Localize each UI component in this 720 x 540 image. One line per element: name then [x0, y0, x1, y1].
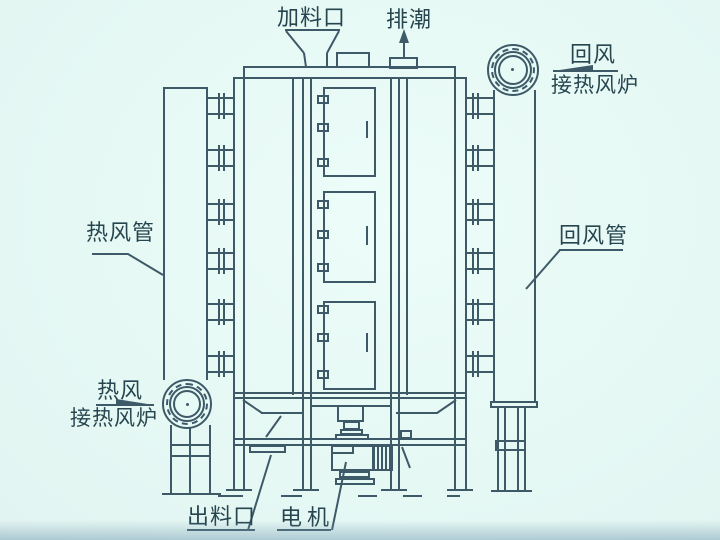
return-air-pipe-leader [526, 250, 560, 289]
label-hot-air: 热风 [97, 380, 143, 402]
feed-hopper-outline [286, 31, 339, 67]
bottom-scan-shade [0, 520, 720, 540]
discharge-chute-line [266, 416, 281, 437]
label-hot-air-pipe: 热风管 [86, 222, 155, 244]
label-return-air-pipe: 回风管 [559, 225, 628, 247]
return-air-pipe-underline [559, 249, 623, 251]
plate-dryer-diagram: 加料口 排潮 回风 接热风炉 热风管 回风管 热风 接热风炉 出料口 电机 [0, 0, 720, 540]
hot-air-pipe-leader [92, 254, 163, 275]
brace-line [402, 447, 410, 468]
label-return-air-furnace: 接热风炉 [551, 75, 639, 96]
return-air-underline [553, 70, 618, 72]
label-hot-air-furnace: 接热风炉 [70, 408, 158, 429]
label-moisture-exhaust: 排潮 [386, 9, 432, 31]
label-return-air: 回风 [570, 44, 616, 66]
trough-slope [243, 400, 456, 413]
label-feed-inlet: 加料口 [277, 7, 346, 29]
hot-air-underline [96, 404, 154, 406]
